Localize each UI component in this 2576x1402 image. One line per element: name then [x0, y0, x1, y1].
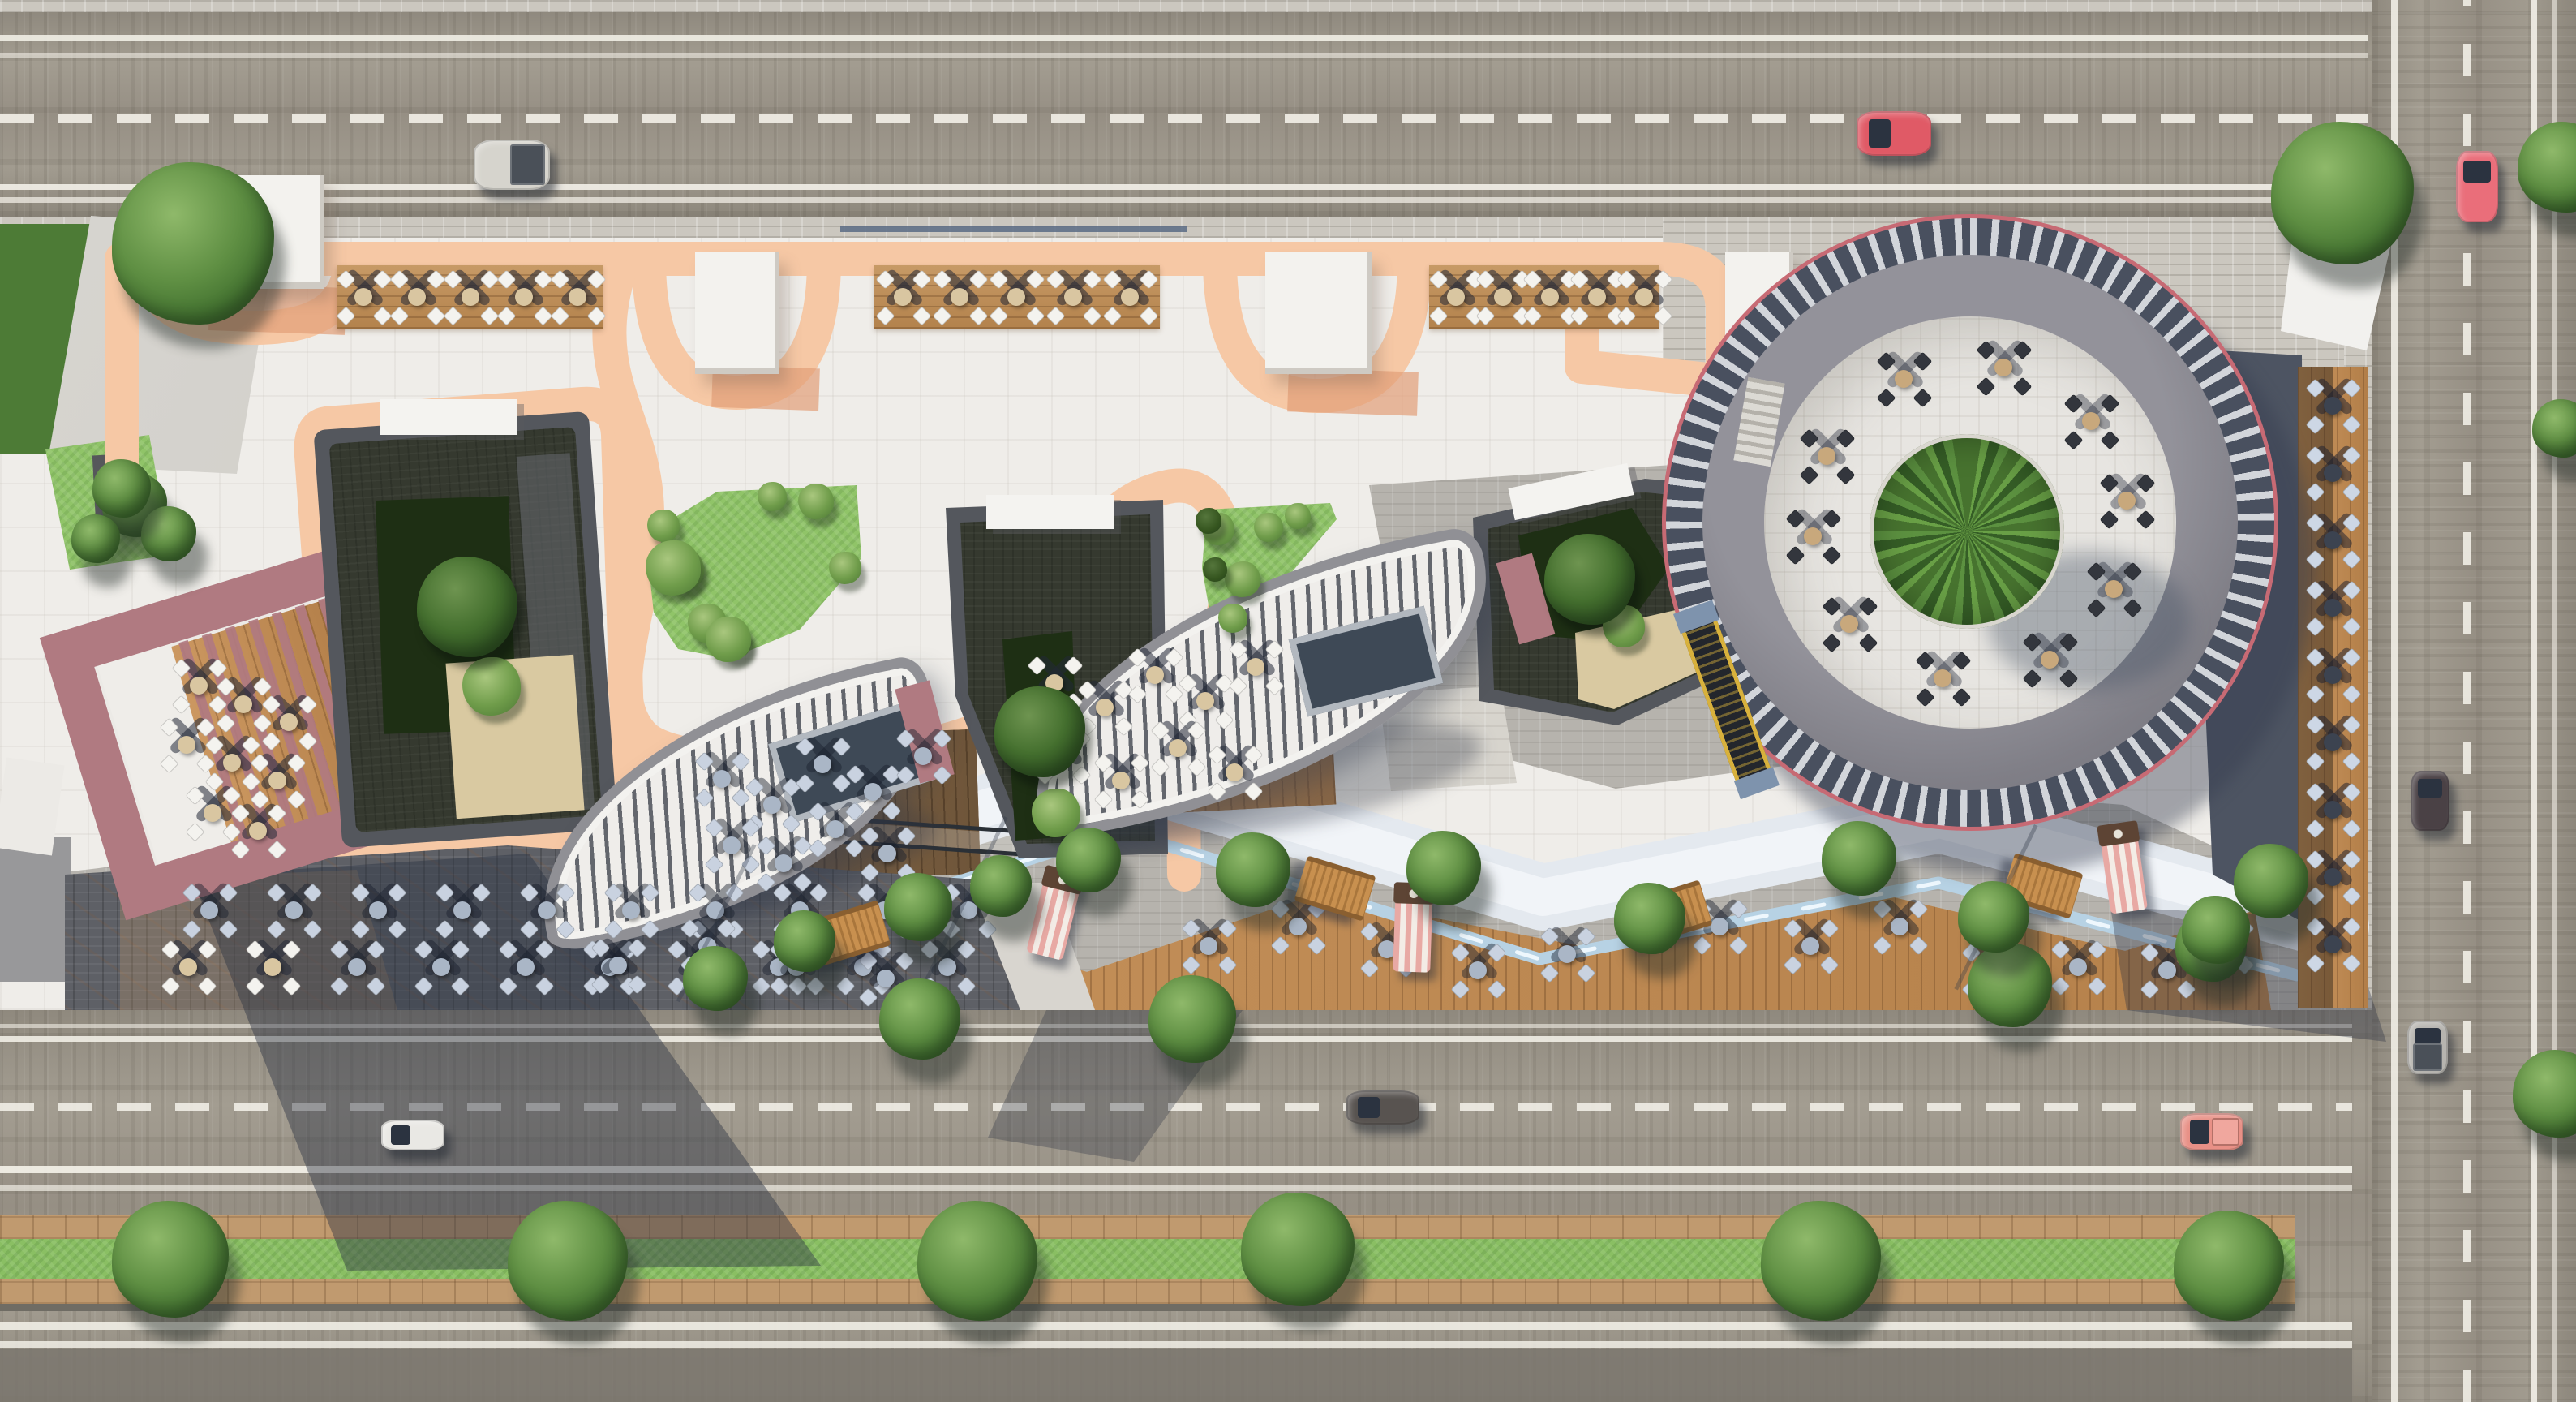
table-cluster — [2307, 918, 2359, 970]
table — [1711, 918, 1728, 935]
table-cluster — [2052, 941, 2104, 993]
chair — [1217, 955, 1237, 974]
table — [1469, 961, 1487, 979]
table-cluster — [1152, 722, 1204, 774]
bush — [646, 540, 701, 596]
chair — [2136, 510, 2155, 529]
bush — [758, 482, 787, 511]
chair — [858, 987, 878, 1007]
table-cluster — [2065, 395, 2117, 447]
chair — [1539, 963, 1559, 983]
chair — [230, 840, 250, 859]
chair — [303, 919, 322, 939]
table — [432, 958, 450, 976]
chair — [603, 919, 623, 939]
car-glass — [2415, 1028, 2441, 1044]
table-cluster — [605, 884, 657, 936]
table — [515, 288, 533, 306]
table-cluster — [247, 941, 298, 993]
table-cluster — [2088, 563, 2140, 615]
tree — [1216, 832, 1290, 907]
chair — [533, 306, 552, 325]
table — [249, 822, 267, 840]
table — [2324, 733, 2342, 751]
tree — [112, 1201, 229, 1318]
tree — [508, 1201, 628, 1321]
table — [453, 901, 471, 919]
chair — [435, 919, 454, 939]
table — [280, 713, 298, 731]
chair — [1214, 710, 1234, 729]
chair — [298, 731, 317, 750]
chair — [2176, 979, 2196, 999]
chair — [781, 814, 801, 833]
table-cluster — [1784, 920, 1836, 972]
table — [2324, 599, 2342, 617]
chair — [1150, 757, 1170, 776]
table-cluster — [877, 271, 929, 323]
table — [1635, 288, 1653, 306]
chair — [2342, 482, 2361, 501]
chair — [185, 822, 204, 841]
chair — [496, 306, 516, 325]
chair — [751, 976, 771, 996]
chair — [1082, 306, 1101, 325]
tree — [1241, 1193, 1355, 1306]
chair — [2305, 819, 2325, 838]
tree — [917, 1201, 1037, 1321]
chair — [182, 919, 201, 939]
bush — [1225, 561, 1260, 597]
chair — [1819, 955, 1839, 974]
car-glass — [2463, 161, 2490, 182]
van-top-road — [474, 140, 550, 190]
chair — [977, 919, 997, 939]
table — [285, 901, 303, 919]
table — [877, 970, 895, 987]
car-body — [1857, 111, 1931, 156]
red-car-top-road — [1857, 111, 1931, 156]
table — [2158, 961, 2176, 979]
chair — [860, 862, 879, 882]
chair — [535, 976, 554, 996]
tree — [1148, 975, 1236, 1063]
table — [268, 772, 286, 789]
table — [1588, 288, 1606, 306]
white-car-bottom-road — [381, 1120, 444, 1150]
chair — [350, 919, 370, 939]
chair — [1576, 963, 1595, 983]
chair — [267, 840, 286, 859]
tree — [2174, 1211, 2284, 1321]
table-cluster — [2307, 514, 2359, 566]
table — [1494, 288, 1512, 306]
tree — [71, 514, 120, 563]
table — [1818, 447, 1835, 465]
table-cluster — [1047, 271, 1099, 323]
table-cluster — [1104, 271, 1156, 323]
courtyard1-skylight-bar — [380, 399, 517, 435]
table — [1891, 918, 1908, 935]
table-cluster — [1179, 675, 1231, 727]
lounge-canopy — [2097, 820, 2140, 847]
chair — [2305, 549, 2325, 569]
chair — [1908, 935, 1928, 955]
table — [938, 958, 956, 976]
chair — [1114, 716, 1133, 736]
table-cluster — [758, 837, 809, 889]
table — [348, 958, 366, 976]
chair — [1428, 306, 1448, 325]
table — [1895, 370, 1913, 388]
chair — [2342, 953, 2361, 973]
table-cluster — [1571, 271, 1623, 323]
chair — [471, 919, 491, 939]
table-cluster — [1801, 430, 1853, 482]
tree — [2234, 844, 2308, 918]
chair — [2342, 886, 2361, 905]
lane-top-solid-2 — [0, 53, 2368, 58]
chair — [2342, 751, 2361, 771]
chair — [1653, 306, 1672, 325]
chair — [932, 306, 951, 325]
chair — [2050, 976, 2070, 996]
table-cluster — [2307, 716, 2359, 768]
table — [1007, 288, 1025, 306]
gray-van-right-road — [2407, 1021, 2448, 1074]
chair — [792, 872, 812, 892]
chair — [1728, 935, 1748, 955]
table — [1196, 692, 1214, 710]
chair — [1450, 979, 1470, 999]
chair — [443, 306, 462, 325]
chair — [2305, 415, 2325, 434]
pink-truck-bottom-road — [2180, 1113, 2243, 1150]
lane-right-solid-2 — [2531, 0, 2537, 1402]
table — [538, 901, 556, 919]
chair — [1872, 935, 1891, 955]
table-cluster — [268, 884, 320, 936]
table — [1801, 937, 1819, 955]
bush — [1203, 557, 1227, 582]
table-cluster — [796, 738, 848, 790]
chair — [216, 713, 235, 733]
chair — [1616, 306, 1636, 325]
chair — [586, 306, 606, 325]
chair — [1181, 955, 1200, 974]
table-cluster — [436, 884, 488, 936]
chair — [1045, 306, 1065, 325]
lane-top-dashed — [0, 114, 2368, 123]
tree — [1406, 831, 1481, 905]
table — [1112, 772, 1130, 789]
table — [713, 770, 731, 788]
chair — [2305, 684, 2325, 703]
chair — [704, 854, 723, 874]
tree — [1056, 828, 1121, 892]
chair — [2087, 976, 2106, 996]
chair — [805, 976, 825, 996]
table-cluster — [521, 884, 573, 936]
chair — [372, 306, 392, 325]
van-cargo — [510, 144, 545, 185]
table-cluster — [1183, 920, 1234, 972]
sidewalk-top-edge — [0, 0, 2576, 12]
table — [2324, 801, 2342, 819]
table — [1558, 945, 1576, 963]
table-cluster — [1230, 641, 1282, 693]
table — [1840, 615, 1858, 633]
table — [1226, 763, 1243, 781]
chair — [1207, 781, 1226, 801]
truck-bed — [2212, 1118, 2239, 1146]
table-cluster — [352, 884, 404, 936]
table-cluster — [990, 271, 1042, 323]
chair — [1475, 306, 1495, 325]
chair — [2342, 819, 2361, 838]
table — [723, 836, 741, 854]
chair — [387, 919, 406, 939]
dark-car-right-road — [2411, 771, 2449, 831]
tree — [1761, 1201, 1881, 1321]
lane-top-solid-3 — [0, 184, 2368, 190]
tree — [1822, 821, 1896, 896]
chair — [1093, 789, 1113, 809]
tree — [879, 978, 960, 1060]
table — [264, 958, 281, 976]
courtyard2-skylight-bar — [986, 495, 1114, 529]
table — [609, 957, 627, 974]
chair — [956, 976, 976, 996]
chair — [2100, 430, 2119, 449]
chair — [550, 306, 569, 325]
chair — [1915, 687, 1934, 707]
van-cargo — [2413, 1043, 2442, 1071]
table — [2324, 531, 2342, 549]
table — [200, 901, 218, 919]
table-cluster — [162, 941, 214, 993]
table-cluster — [2307, 582, 2359, 634]
chair — [2022, 669, 2041, 688]
tree — [2271, 122, 2414, 264]
chair — [329, 976, 349, 996]
median-paver-south — [0, 1279, 2295, 1304]
tree — [112, 162, 274, 325]
tree — [1958, 881, 2029, 953]
table — [878, 845, 896, 862]
table — [2041, 651, 2059, 669]
chair — [2086, 598, 2106, 617]
table — [2324, 868, 2342, 886]
road-bottom-dark-strip — [0, 1349, 2352, 1402]
table — [178, 736, 195, 754]
table — [1247, 658, 1264, 676]
lane-top-solid-4 — [0, 197, 2368, 203]
chair — [1127, 684, 1147, 703]
chair — [498, 976, 517, 996]
table-cluster — [696, 753, 748, 805]
table — [1934, 669, 1951, 687]
table-cluster — [1129, 649, 1181, 701]
chair — [1783, 955, 1802, 974]
table-cluster — [706, 819, 758, 871]
table-cluster — [498, 271, 550, 323]
chair — [1522, 306, 1542, 325]
chair — [1951, 687, 1971, 707]
gray-slab-lower-left — [0, 837, 71, 982]
tree — [2182, 896, 2250, 964]
lane-top-solid-1 — [0, 35, 2368, 41]
table — [914, 747, 932, 765]
table-cluster — [1452, 944, 1504, 996]
table — [2105, 580, 2123, 598]
chair — [1799, 465, 1818, 484]
table — [190, 677, 208, 695]
tree — [92, 459, 151, 518]
bush — [1254, 513, 1283, 542]
chair — [808, 838, 827, 858]
chair — [1130, 789, 1149, 809]
chair — [450, 976, 470, 996]
table — [864, 783, 882, 801]
table-cluster — [1977, 342, 2029, 394]
table — [826, 820, 844, 838]
table-cluster — [861, 828, 913, 879]
chair — [1071, 765, 1091, 785]
table — [622, 901, 640, 919]
chair — [590, 974, 610, 994]
table-cluster — [2307, 851, 2359, 903]
car-glass — [2418, 779, 2443, 797]
table-cluster — [331, 941, 383, 993]
skylight-box-1 — [695, 252, 779, 374]
table-cluster — [391, 271, 443, 323]
car-glass — [1358, 1097, 1380, 1119]
table — [1121, 288, 1139, 306]
table — [1096, 699, 1114, 716]
bush — [706, 617, 751, 662]
table — [1447, 288, 1465, 306]
lane-bottom-solid-4 — [0, 1341, 2352, 1348]
chair — [1270, 935, 1290, 955]
chair — [1822, 633, 1841, 652]
table — [204, 804, 221, 822]
table-cluster — [1878, 353, 1930, 405]
table-cluster — [2101, 475, 2153, 527]
table — [2069, 958, 2087, 976]
chair — [261, 731, 281, 750]
chair — [2012, 376, 2032, 396]
table-cluster — [1917, 652, 1968, 704]
table — [2324, 935, 2342, 953]
table — [1064, 288, 1082, 306]
chair — [968, 306, 988, 325]
chair — [1976, 376, 1995, 396]
chair — [2342, 684, 2361, 703]
chair — [627, 974, 646, 994]
table — [894, 288, 912, 306]
chair — [171, 695, 191, 714]
chair — [875, 306, 895, 325]
chair — [2305, 886, 2325, 905]
table-cluster — [251, 755, 303, 806]
chair — [2305, 617, 2325, 636]
table — [2324, 397, 2342, 415]
table-cluster — [1787, 510, 1839, 562]
chair — [1487, 979, 1506, 999]
table — [2324, 464, 2342, 482]
table-cluster — [263, 696, 315, 748]
pink-car-right-road — [2456, 151, 2498, 222]
bush — [1218, 604, 1247, 633]
table-cluster — [2307, 380, 2359, 432]
table — [369, 901, 387, 919]
table — [763, 796, 781, 814]
table-cluster — [1541, 928, 1593, 980]
chair — [281, 976, 301, 996]
tree — [1968, 943, 2052, 1027]
table-cluster — [500, 941, 552, 993]
table — [775, 854, 792, 872]
table — [234, 695, 252, 713]
chair — [1858, 633, 1878, 652]
chair — [694, 788, 714, 807]
table-cluster — [2307, 649, 2359, 701]
table — [1994, 359, 2012, 376]
chair — [1264, 676, 1284, 695]
chair — [640, 919, 659, 939]
table-cluster — [1095, 755, 1147, 806]
chair — [932, 765, 951, 785]
car-glass — [1869, 119, 1891, 148]
chair — [912, 306, 931, 325]
chair — [519, 919, 539, 939]
chair — [1876, 388, 1896, 407]
tree — [141, 506, 196, 561]
bush — [462, 657, 521, 716]
table — [814, 755, 831, 773]
chair — [769, 976, 788, 996]
chair — [159, 754, 178, 773]
sedan-bottom-road — [1346, 1090, 1419, 1125]
table — [354, 288, 372, 306]
chair — [218, 919, 238, 939]
chair — [1692, 935, 1711, 955]
skylight-shadow-2 — [1287, 368, 1419, 416]
chair — [1822, 545, 1841, 565]
table-cluster — [2024, 634, 2076, 686]
chair — [835, 976, 855, 996]
chair — [895, 765, 915, 785]
table-cluster — [552, 271, 603, 323]
chair — [1569, 306, 1589, 325]
entrance-canopy-line — [840, 226, 1187, 232]
chair — [2063, 430, 2083, 449]
chair — [426, 306, 445, 325]
table-cluster — [1272, 901, 1324, 953]
table — [2118, 492, 2136, 510]
bush — [1196, 508, 1221, 534]
car-glass — [2190, 1120, 2209, 1143]
chair — [1228, 676, 1247, 695]
table-cluster — [1209, 746, 1260, 798]
chair — [882, 801, 901, 820]
chair — [2342, 617, 2361, 636]
chair — [479, 306, 499, 325]
chair — [1359, 958, 1379, 978]
table — [223, 754, 241, 772]
tree — [994, 686, 1085, 777]
